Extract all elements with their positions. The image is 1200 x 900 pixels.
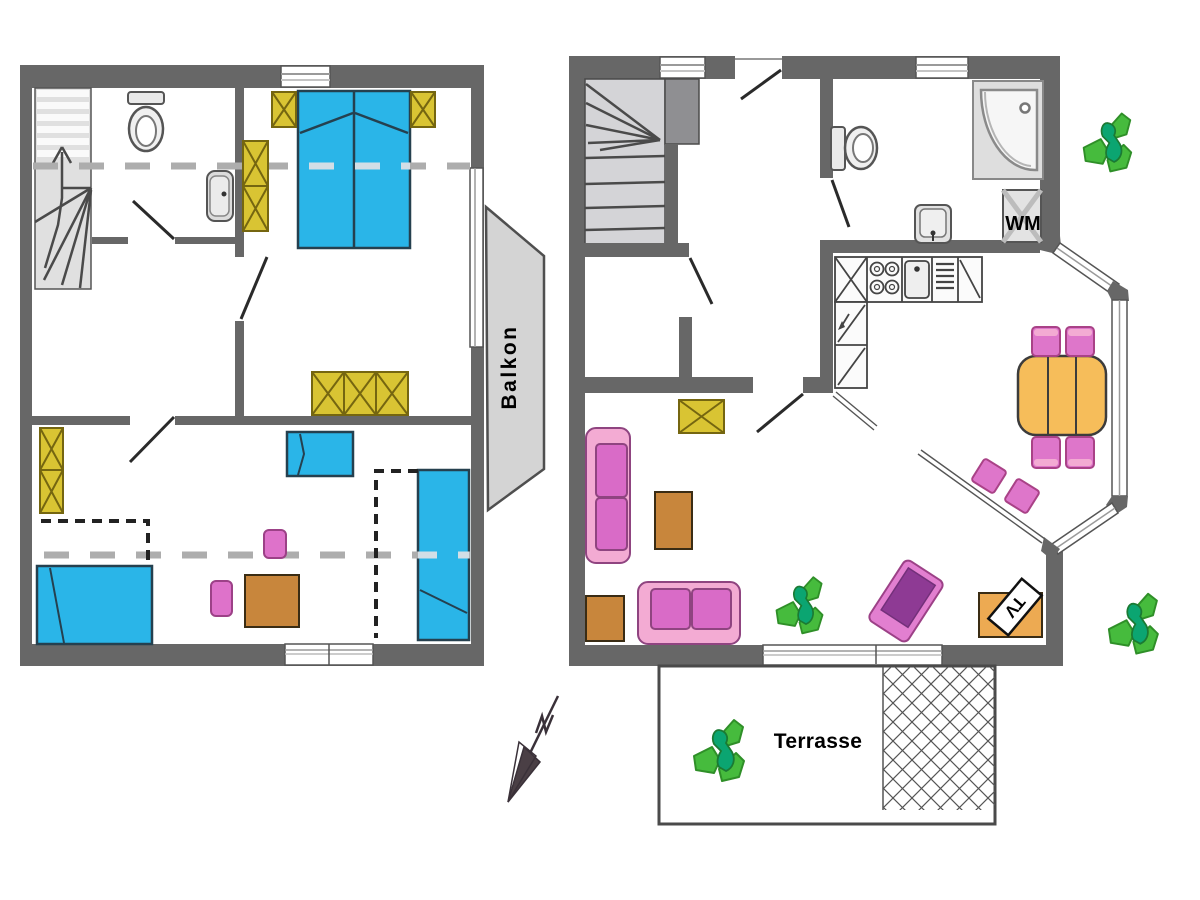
svg-text:Balkon: Balkon <box>498 324 521 409</box>
svg-text:Terrasse: Terrasse <box>774 730 862 753</box>
svg-text:WM: WM <box>1005 213 1041 235</box>
